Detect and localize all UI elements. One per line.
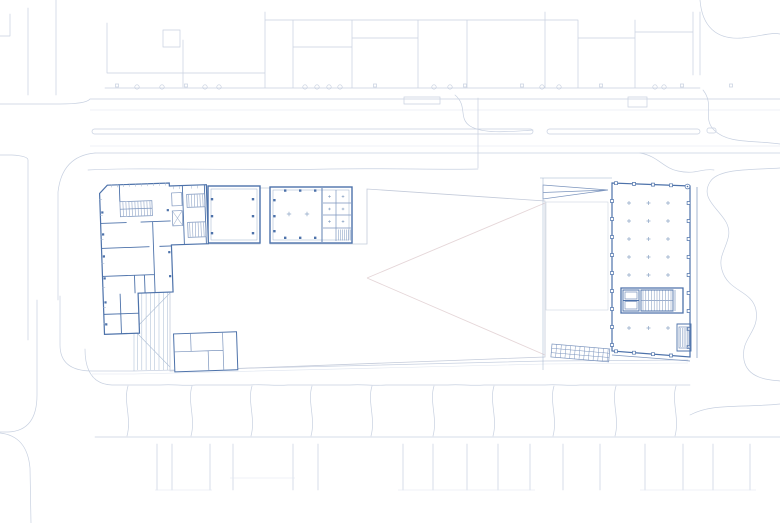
hall-b-skylight-grid xyxy=(270,187,352,243)
tree-icon xyxy=(662,85,666,89)
garden-curve xyxy=(700,0,780,38)
paved-stair-strip xyxy=(551,344,610,362)
left-corner-curves xyxy=(0,300,37,523)
tree-icon xyxy=(432,85,436,89)
corner-column-dot xyxy=(687,186,689,188)
wedge-outline xyxy=(543,185,608,199)
north-block-outlines xyxy=(0,0,700,107)
garden-curve xyxy=(703,90,780,144)
terrace-deck-area xyxy=(546,202,608,310)
tree-icon xyxy=(160,85,164,89)
street-trees xyxy=(135,85,666,89)
median-island xyxy=(92,129,533,134)
skylight-stair-hatch xyxy=(339,230,351,241)
strip-border xyxy=(551,344,610,362)
garden-curve xyxy=(690,404,780,415)
ramp-hatch-lines xyxy=(138,292,168,370)
hall-a-walls xyxy=(208,186,260,243)
site-south-boundary xyxy=(60,296,688,371)
site-north-boundary xyxy=(88,169,478,170)
tree-icon xyxy=(303,85,307,89)
tree-icon xyxy=(315,85,319,89)
tree-icon xyxy=(540,85,544,89)
tree-icon xyxy=(327,85,331,89)
escalator-wedges xyxy=(540,178,612,370)
site-plan-drawing xyxy=(0,0,780,523)
site-plan-canvas xyxy=(0,0,780,523)
parcel-dividers xyxy=(157,444,750,490)
hall-a xyxy=(208,186,260,243)
context-north-block xyxy=(0,0,733,107)
tree-icon xyxy=(653,85,657,89)
garden-curve xyxy=(455,95,533,132)
tree-icon xyxy=(557,85,561,89)
garden-walls xyxy=(126,386,676,436)
side-street-curbs xyxy=(0,153,95,340)
tree-icon xyxy=(338,85,342,89)
tree-icon xyxy=(217,85,221,89)
parcel-back-lines xyxy=(155,478,756,490)
west-wall-lines xyxy=(540,178,612,370)
sidewalk-posts xyxy=(116,84,733,87)
terrace-deck xyxy=(546,202,608,310)
north-curb-line xyxy=(0,99,780,104)
southeast-stair xyxy=(677,324,691,351)
tree-icon xyxy=(135,85,139,89)
median-island xyxy=(547,129,700,134)
roof-hip-lines xyxy=(367,203,545,355)
service-core xyxy=(621,288,683,313)
tree-icon xyxy=(448,85,452,89)
right-building-outline xyxy=(612,183,690,357)
tree-icon xyxy=(203,85,207,89)
garden-curve xyxy=(707,168,780,381)
right-building xyxy=(611,182,698,361)
garden-curve xyxy=(640,153,714,172)
